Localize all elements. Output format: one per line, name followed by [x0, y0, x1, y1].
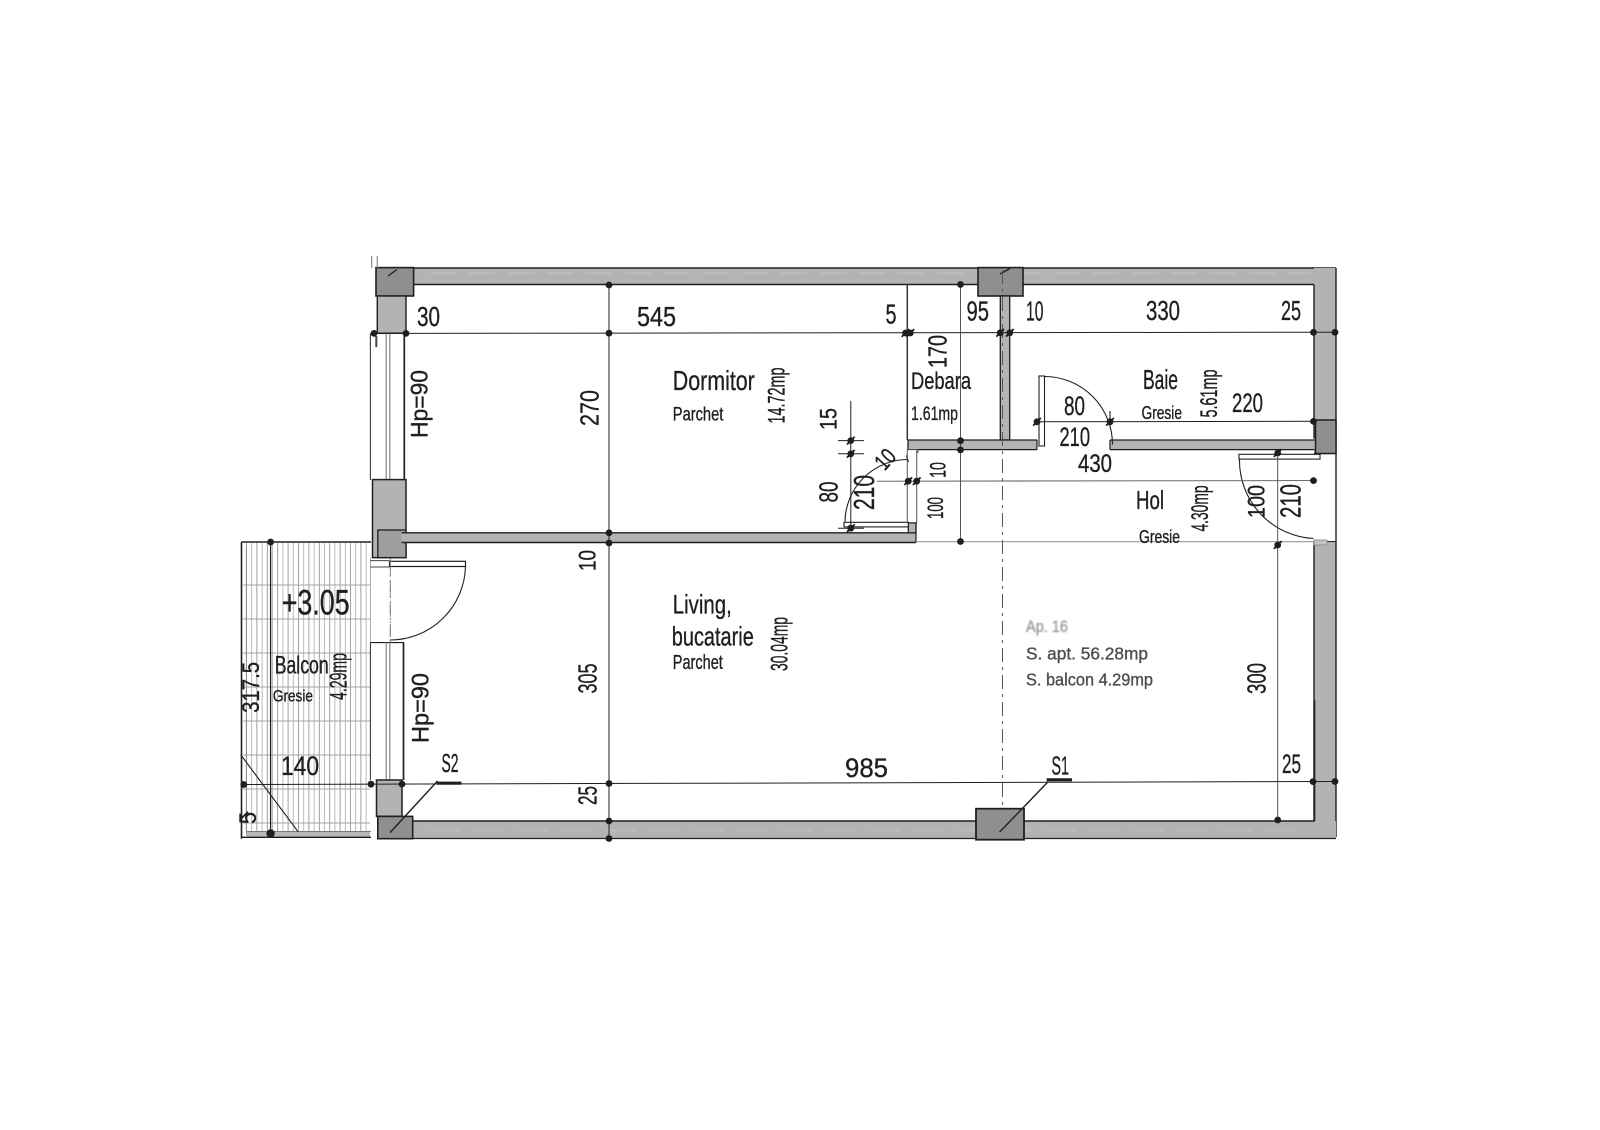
svg-text:80: 80: [813, 482, 843, 503]
svg-text:5.61mp: 5.61mp: [1196, 370, 1223, 418]
svg-text:25: 25: [1281, 295, 1301, 326]
svg-text:5: 5: [886, 299, 897, 330]
svg-text:4.30mp: 4.30mp: [1187, 486, 1214, 532]
svg-text:210: 210: [1276, 484, 1308, 518]
svg-text:25: 25: [572, 786, 602, 805]
svg-text:210: 210: [1060, 422, 1091, 452]
svg-text:330: 330: [1146, 295, 1180, 326]
svg-text:80: 80: [1064, 391, 1085, 421]
svg-text:545: 545: [637, 301, 676, 332]
svg-text:100: 100: [923, 497, 948, 519]
svg-text:S. apt. 56.28mp: S. apt. 56.28mp: [1026, 644, 1148, 664]
svg-text:Ap. 16: Ap. 16: [1026, 617, 1068, 636]
svg-text:Gresie: Gresie: [1139, 527, 1180, 547]
svg-text:430: 430: [1078, 450, 1112, 478]
svg-text:140: 140: [281, 751, 319, 781]
svg-text:bucatarie: bucatarie: [672, 621, 754, 651]
svg-text:Balcon: Balcon: [275, 652, 329, 680]
svg-text:30.04mp: 30.04mp: [767, 617, 794, 671]
svg-text:25: 25: [1282, 749, 1301, 779]
svg-text:210: 210: [849, 475, 881, 510]
svg-text:300: 300: [1241, 663, 1271, 694]
svg-text:15: 15: [816, 408, 843, 430]
svg-text:100: 100: [1244, 485, 1271, 518]
svg-text:S2: S2: [442, 748, 459, 778]
svg-text:+3.05: +3.05: [282, 584, 350, 623]
svg-text:S. balcon 4.29mp: S. balcon 4.29mp: [1026, 670, 1153, 690]
svg-text:10: 10: [575, 550, 602, 571]
svg-text:985: 985: [845, 753, 888, 783]
svg-text:Parchet: Parchet: [673, 652, 723, 674]
svg-text:Baie: Baie: [1143, 364, 1178, 395]
svg-text:30: 30: [417, 301, 440, 332]
svg-text:Dormitor: Dormitor: [673, 365, 755, 396]
svg-text:14.72mp: 14.72mp: [764, 368, 791, 424]
svg-text:Debara: Debara: [911, 368, 971, 395]
svg-text:Gresie: Gresie: [1142, 403, 1183, 423]
svg-text:305: 305: [572, 664, 602, 694]
svg-text:10: 10: [1026, 296, 1044, 327]
svg-text:Parchet: Parchet: [673, 404, 724, 426]
svg-text:4.29mp: 4.29mp: [326, 653, 353, 700]
svg-text:220: 220: [1232, 388, 1263, 418]
svg-text:270: 270: [574, 390, 604, 426]
svg-text:95: 95: [967, 296, 990, 327]
svg-text:Hol: Hol: [1136, 485, 1164, 515]
svg-text:S1: S1: [1052, 751, 1070, 781]
svg-text:317.5: 317.5: [238, 662, 265, 713]
svg-text:1.61mp: 1.61mp: [911, 403, 958, 425]
svg-text:Living,: Living,: [673, 590, 732, 620]
svg-text:Gresie: Gresie: [273, 686, 313, 705]
svg-text:170: 170: [922, 335, 952, 368]
svg-text:10: 10: [926, 462, 951, 478]
svg-text:Hp=90: Hp=90: [408, 673, 435, 743]
svg-text:5: 5: [235, 812, 262, 824]
svg-text:Hp=90: Hp=90: [407, 370, 434, 438]
